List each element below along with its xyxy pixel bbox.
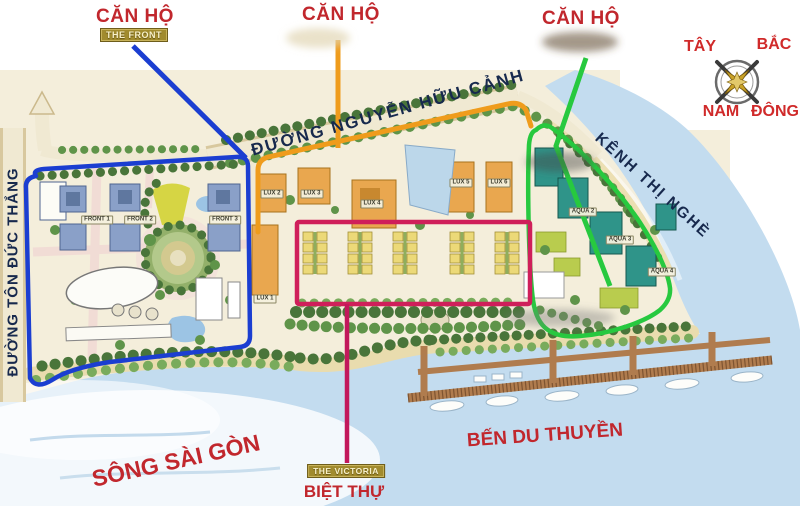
victoria-banner: THE VICTORIA: [307, 464, 385, 478]
building-chip-lux-1: LUX 1: [253, 295, 276, 304]
site-plan-illustration: [0, 0, 800, 506]
building-chip-front-2: FRONT 2: [124, 216, 156, 225]
callout-title-aqua: CĂN HỘ: [542, 8, 620, 30]
building-chip-lux-5: LUX 5: [449, 179, 472, 188]
master-plan-map: CĂN HỘ THE FRONT CĂN HỘ CĂN HỘ TÂY BẮC N…: [0, 0, 800, 506]
villa-label: BIỆT THỰ: [304, 482, 384, 502]
compass-north-label: BẮC: [757, 36, 792, 54]
callout-title-front: CĂN HỘ: [96, 6, 174, 28]
building-chip-aqua-3: AQUA 3: [606, 236, 634, 245]
building-chip-lux-4: LUX 4: [360, 200, 383, 209]
callout-title-lux: CĂN HỘ: [302, 4, 380, 26]
building-chip-aqua-4: AQUA 4: [648, 268, 676, 277]
building-chip-front-1: FRONT 1: [81, 216, 113, 225]
front-banner: THE FRONT: [100, 28, 168, 42]
building-chip-lux-3: LUX 3: [300, 190, 323, 199]
building-chip-lux-6: LUX 6: [487, 179, 510, 188]
road-label-ton-duc-thang: ĐƯỜNG TÔN ĐỨC THẮNG: [5, 167, 22, 376]
building-chip-front-3: FRONT 3: [209, 216, 241, 225]
compass-south-label: NAM: [703, 103, 739, 121]
compass-rose: [716, 61, 758, 103]
building-chip-lux-2: LUX 2: [260, 190, 283, 199]
compass-east-label: ĐÔNG: [751, 103, 799, 121]
building-chip-aqua-2: AQUA 2: [569, 208, 597, 217]
compass-west-label: TÂY: [684, 38, 716, 56]
